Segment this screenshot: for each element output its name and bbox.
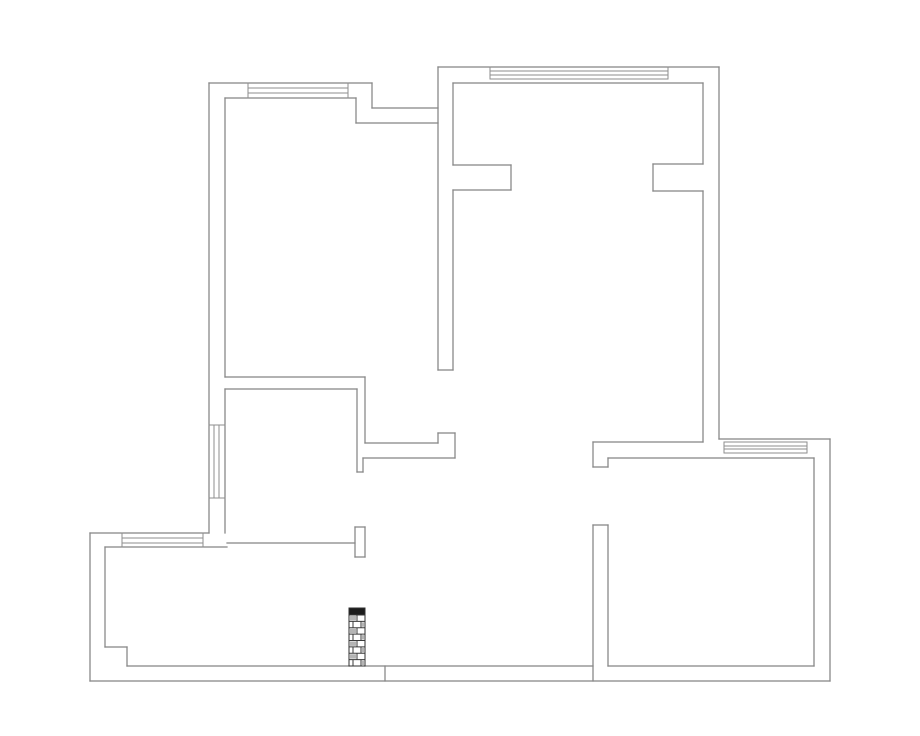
brick-cap (349, 608, 365, 615)
floor-plan-svg (0, 0, 920, 736)
brick-column (349, 608, 365, 666)
walls-group (90, 67, 830, 681)
brick-cell-shaded (350, 654, 356, 658)
brick-cell-shaded (350, 642, 356, 646)
brick-cell-shaded (362, 635, 364, 639)
floor-plan-page (0, 0, 920, 736)
brick-cell-shaded (362, 661, 364, 665)
brick-cell-shaded (362, 622, 364, 626)
brick-cell-shaded (350, 629, 356, 633)
brick-cell-shaded (350, 616, 356, 620)
brick-cell-shaded (362, 648, 364, 652)
